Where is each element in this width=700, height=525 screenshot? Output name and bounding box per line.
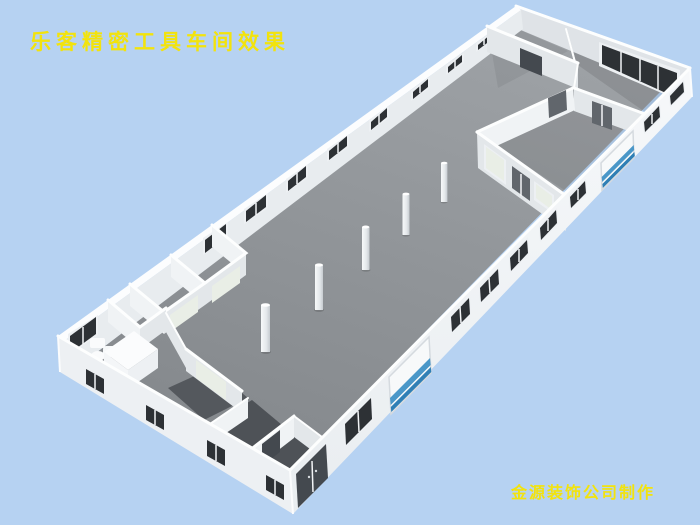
column [440,162,447,204]
column [261,303,271,354]
column [362,226,371,272]
credit-text: 金源装饰公司制作 [511,479,655,503]
workshop-render-page: 乐客精密工具车间效果 金源装饰公司制作 [0,0,700,525]
column [314,263,324,312]
workshop-3d-render [0,0,700,525]
page-title: 乐客精密工具车间效果 [30,26,290,56]
column [402,193,410,237]
